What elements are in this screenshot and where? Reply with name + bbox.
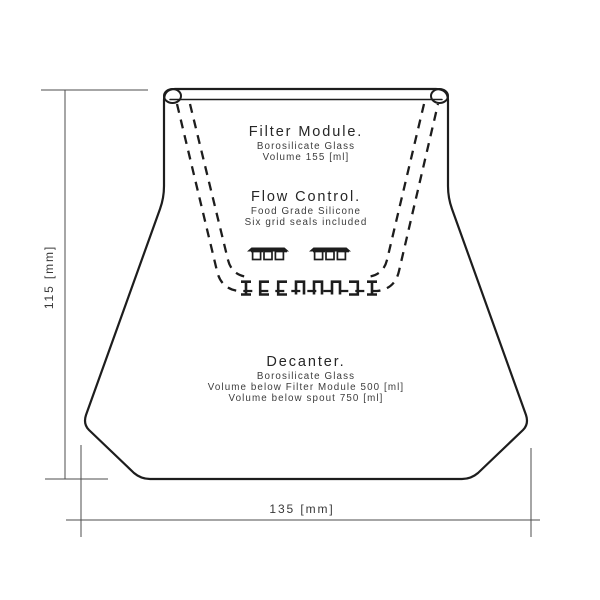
filter-module-title: Filter Module. (249, 124, 363, 140)
height-dimension-label: 115 [mm] (42, 245, 56, 309)
filter-module-material: Borosilicate Glass (257, 141, 355, 152)
flow-control-title: Flow Control. (251, 189, 361, 205)
grid-seal-tray-icon (247, 248, 289, 260)
grid-seal-tray-icon (309, 248, 351, 260)
decanter-volume-filter: Volume below Filter Module 500 [ml] (208, 382, 404, 393)
decanter-volume-spout: Volume below spout 750 [ml] (229, 393, 384, 404)
flow-control-note: Six grid seals included (245, 217, 368, 228)
decanter-material: Borosilicate Glass (257, 371, 355, 382)
flow-control-material: Food Grade Silicone (251, 206, 361, 217)
decanter-title: Decanter. (266, 354, 345, 370)
technical-drawing-canvas: Filter Module. Borosilicate Glass Volume… (0, 0, 600, 600)
filter-module-volume: Volume 155 [ml] (263, 152, 350, 163)
width-dimension-label: 135 [mm] (269, 502, 334, 516)
